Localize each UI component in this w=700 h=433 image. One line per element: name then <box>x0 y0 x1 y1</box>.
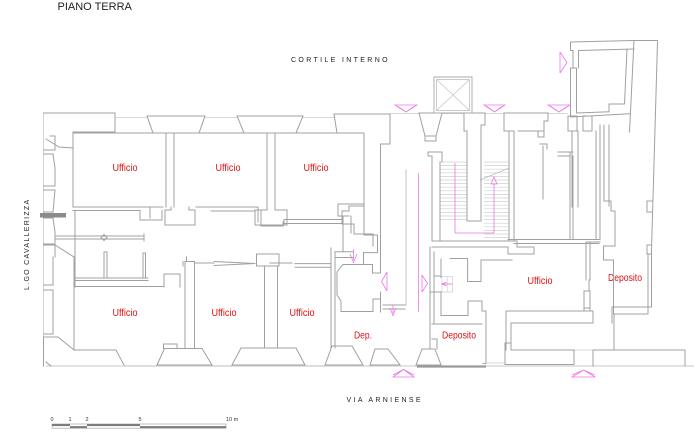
svg-text:1: 1 <box>68 417 71 423</box>
svg-text:5: 5 <box>138 417 141 423</box>
svg-text:Ufficio: Ufficio <box>113 308 138 319</box>
svg-text:Ufficio: Ufficio <box>212 308 237 319</box>
svg-text:Deposito: Deposito <box>442 331 476 342</box>
svg-text:2: 2 <box>85 417 88 423</box>
svg-text:10 m: 10 m <box>226 417 239 423</box>
svg-text:0: 0 <box>50 417 53 423</box>
svg-text:Ufficio: Ufficio <box>113 163 138 174</box>
svg-text:L.GO CAVALLERIZZA: L.GO CAVALLERIZZA <box>24 199 31 290</box>
svg-text:VIA ARNIENSE: VIA ARNIENSE <box>347 397 423 404</box>
svg-text:Ufficio: Ufficio <box>290 308 315 319</box>
svg-text:Ufficio: Ufficio <box>216 163 241 174</box>
svg-text:CORTILE INTERNO: CORTILE INTERNO <box>291 57 390 64</box>
svg-text:Ufficio: Ufficio <box>304 163 329 174</box>
svg-text:Ufficio: Ufficio <box>528 276 553 287</box>
svg-text:PIANO TERRA: PIANO TERRA <box>58 1 133 13</box>
svg-text:Dep.: Dep. <box>354 331 372 342</box>
